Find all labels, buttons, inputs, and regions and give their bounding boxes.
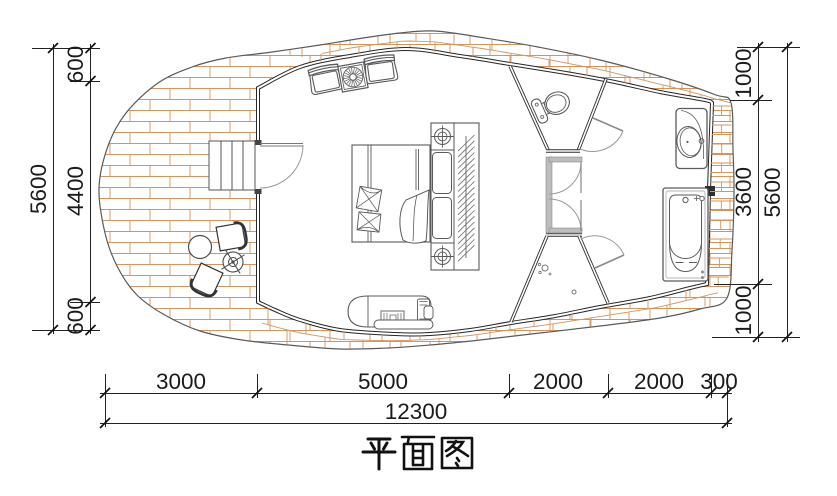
svg-text:3600: 3600 — [731, 167, 756, 217]
svg-text:5600: 5600 — [26, 164, 51, 214]
svg-text:5000: 5000 — [358, 369, 408, 394]
svg-text:600: 600 — [63, 46, 88, 84]
svg-text:5600: 5600 — [760, 167, 785, 217]
svg-text:3000: 3000 — [156, 369, 206, 394]
svg-text:600: 600 — [63, 297, 88, 335]
svg-text:2000: 2000 — [634, 369, 684, 394]
svg-text:4400: 4400 — [63, 166, 88, 216]
svg-text:1000: 1000 — [731, 48, 756, 98]
svg-text:1000: 1000 — [731, 285, 756, 335]
svg-text:300: 300 — [700, 369, 738, 394]
svg-text:2000: 2000 — [533, 369, 583, 394]
svg-text:12300: 12300 — [385, 399, 448, 424]
